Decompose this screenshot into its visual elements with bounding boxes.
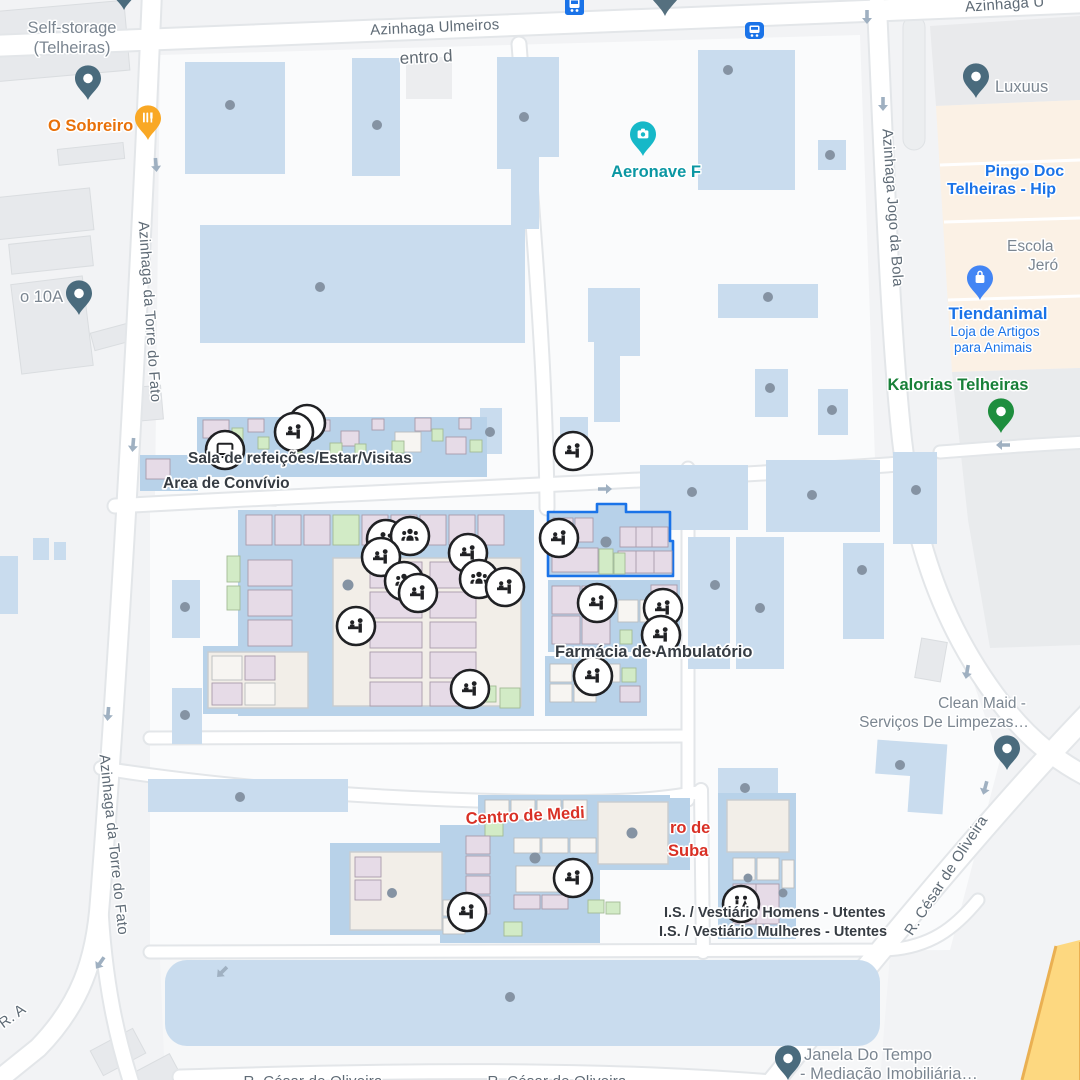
label-centro-partial: entro d [399,46,453,68]
reception-desk-icon [574,657,612,695]
reception-desk-icon [451,670,489,708]
reception-desk-icon [275,413,313,451]
reception-desk-icon [448,893,486,931]
poi-tiendanimal[interactable]: Tiendanimal [949,304,1048,323]
bus-station-icon [565,0,584,15]
poi-self-storage-line1[interactable]: Self-storage [28,19,117,37]
label-farmacia[interactable]: Farmácia de Ambulatório [555,643,752,661]
map-canvas[interactable]: Azinhaga Ulmeiros Azinhaga U entro d Azi… [0,0,1080,1080]
poi-luxuus[interactable]: Luxuus [995,78,1048,96]
label-is-mulheres[interactable]: I.S. / Vestiário Mulheres - Utentes [659,924,887,940]
reception-desk-icon [540,519,578,557]
poi-aeronave[interactable]: Aeronave F [611,163,701,181]
poi-clean-maid-line1[interactable]: Clean Maid - [938,695,1026,712]
label-area-convivio[interactable]: Area de Convívio [163,475,290,492]
poi-10a[interactable]: o 10A [20,288,63,306]
poi-red-partial-1[interactable]: ro de [670,819,710,837]
poi-clean-maid-line2[interactable]: Serviços De Limpezas… [859,714,1029,731]
reception-desk-icon [337,607,375,645]
label-sala-refeicoes[interactable]: Sala de refeições/Estar/Visitas [188,450,412,467]
poi-janela-line1[interactable]: Janela Do Tempo [804,1046,932,1064]
street-cesar-bottom-2: R. César de Oliveira [487,1073,627,1080]
label-is-homens[interactable]: I.S. / Vestiário Homens - Utentes [664,905,886,921]
poi-tiendanimal-sub1[interactable]: Loja de Artigos [950,324,1040,339]
poi-escola-line1[interactable]: Escola [1007,238,1054,255]
reception-desk-icon [554,432,592,470]
poi-pingo-doce-line2[interactable]: Telheiras - Hip [947,181,1056,198]
reception-desk-icon [578,584,616,622]
reception-desk-icon [399,574,437,612]
reception-desk-icon [554,859,592,897]
poi-self-storage-line2[interactable]: (Telheiras) [33,39,110,57]
reception-desk-icon [486,568,524,606]
poi-janela-line2[interactable]: - Mediação Imobiliária… [800,1065,978,1080]
poi-red-partial-2[interactable]: Suba [668,842,709,860]
poi-kalorias[interactable]: Kalorias Telheiras [888,376,1029,394]
poi-o-sobreiro[interactable]: O Sobreiro [48,117,133,135]
poi-escola-line2[interactable]: Jeró [1028,257,1058,274]
street-cesar-bottom-1: R. César de Oliveira [243,1073,383,1080]
poi-tiendanimal-sub2[interactable]: para Animais [954,340,1032,355]
map-svg: Azinhaga Ulmeiros Azinhaga U entro d Azi… [0,0,1080,1080]
bus-station-icon [745,22,764,39]
poi-pingo-doce-line1[interactable]: Pingo Doc [985,163,1064,180]
